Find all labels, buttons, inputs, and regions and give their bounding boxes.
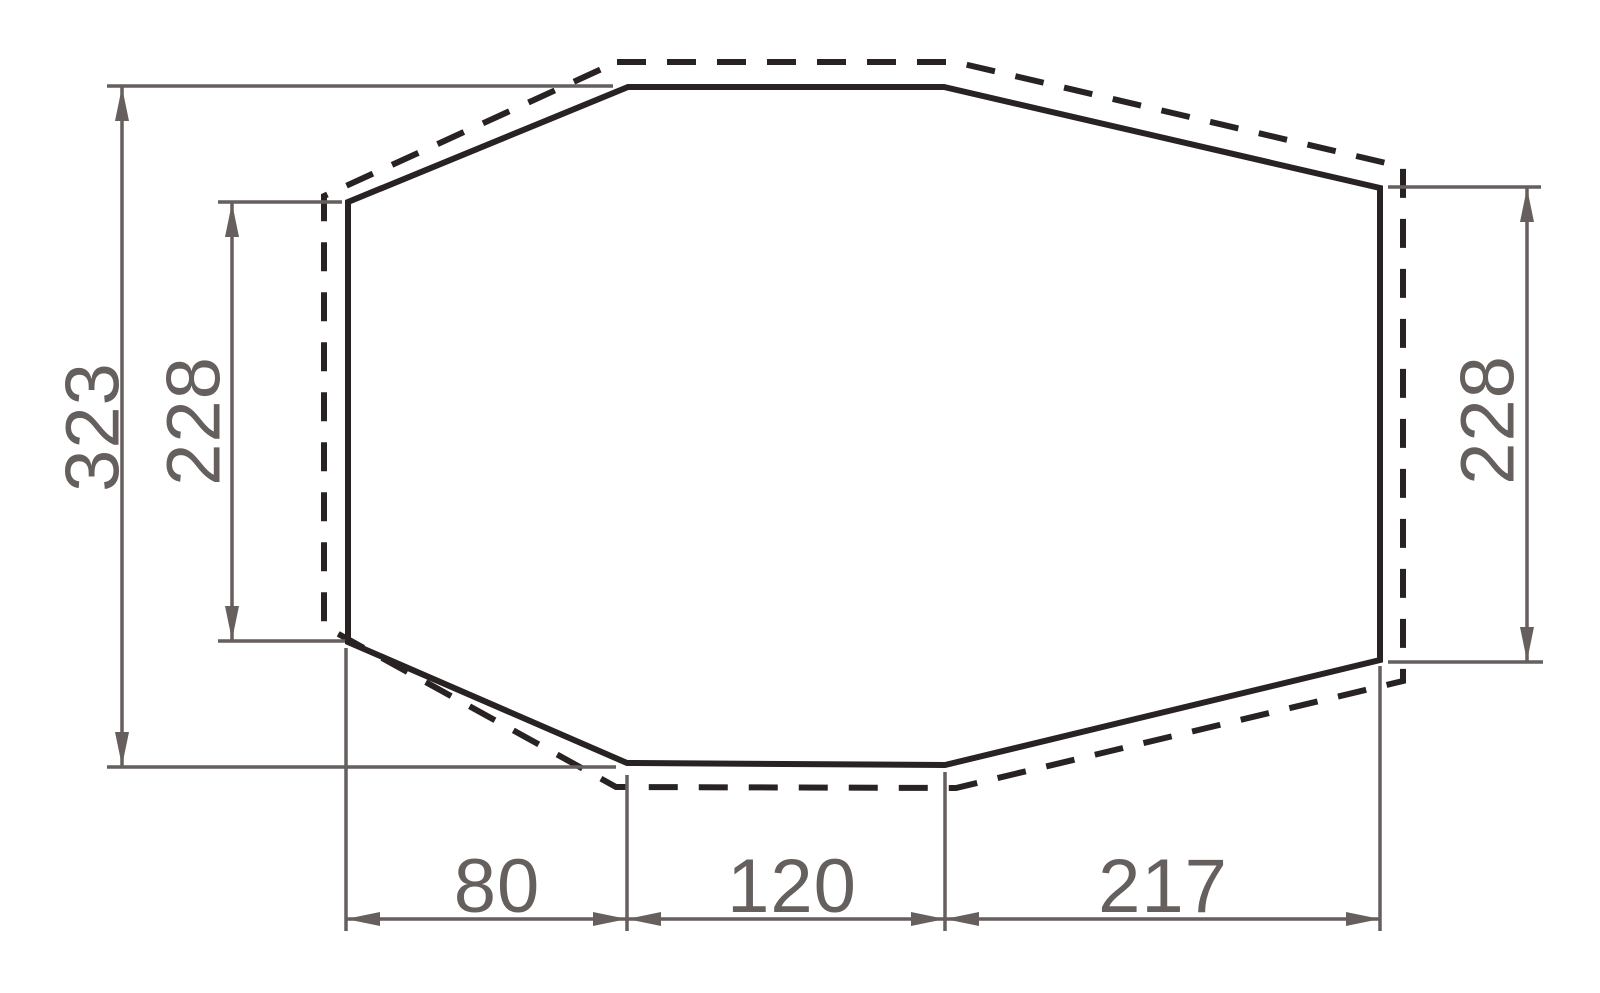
arrow-up-icon [115,87,129,121]
dimension-right-height: 228 [1388,187,1543,662]
dim-label-228-right: 228 [1446,355,1531,485]
arrow-down-icon [225,606,239,640]
arrow-up-icon [225,203,239,237]
arrow-left-icon [945,912,979,926]
arrow-left-icon [627,912,661,926]
arrow-right-icon [1346,912,1380,926]
inner-solid-outline [348,87,1380,765]
arrow-left-icon [346,912,380,926]
dim-label-323: 323 [51,362,136,492]
arrow-down-icon [1520,627,1534,661]
dimension-left-height: 228 [152,202,346,641]
diagram-canvas: 323 228 228 80 120 217 [0,0,1600,993]
dim-label-120: 120 [727,844,857,929]
arrow-right-icon [593,912,627,926]
dimension-overall-height: 323 [51,86,617,767]
diagram-stage: 323 228 228 80 120 217 [0,0,1600,993]
footprint-shape [324,62,1403,788]
arrow-up-icon [1520,188,1534,222]
dim-label-217: 217 [1098,844,1228,929]
outer-dashed-outline [324,62,1403,788]
dim-label-228-left: 228 [152,356,237,486]
arrow-down-icon [115,732,129,766]
dim-label-80: 80 [454,844,541,929]
arrow-right-icon [911,912,945,926]
